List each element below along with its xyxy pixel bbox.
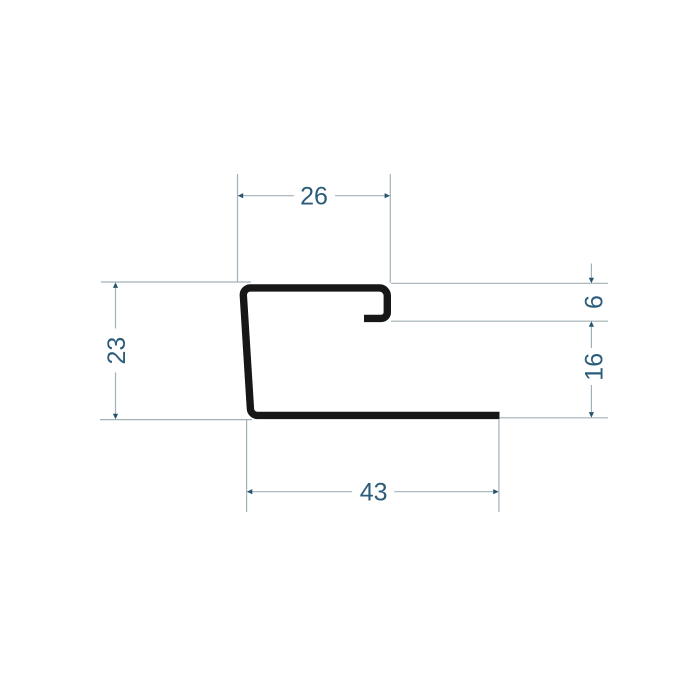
svg-text:43: 43 (360, 479, 388, 507)
svg-text:23: 23 (103, 337, 131, 365)
svg-text:16: 16 (581, 353, 609, 381)
svg-text:6: 6 (581, 295, 609, 309)
svg-text:26: 26 (300, 183, 328, 211)
